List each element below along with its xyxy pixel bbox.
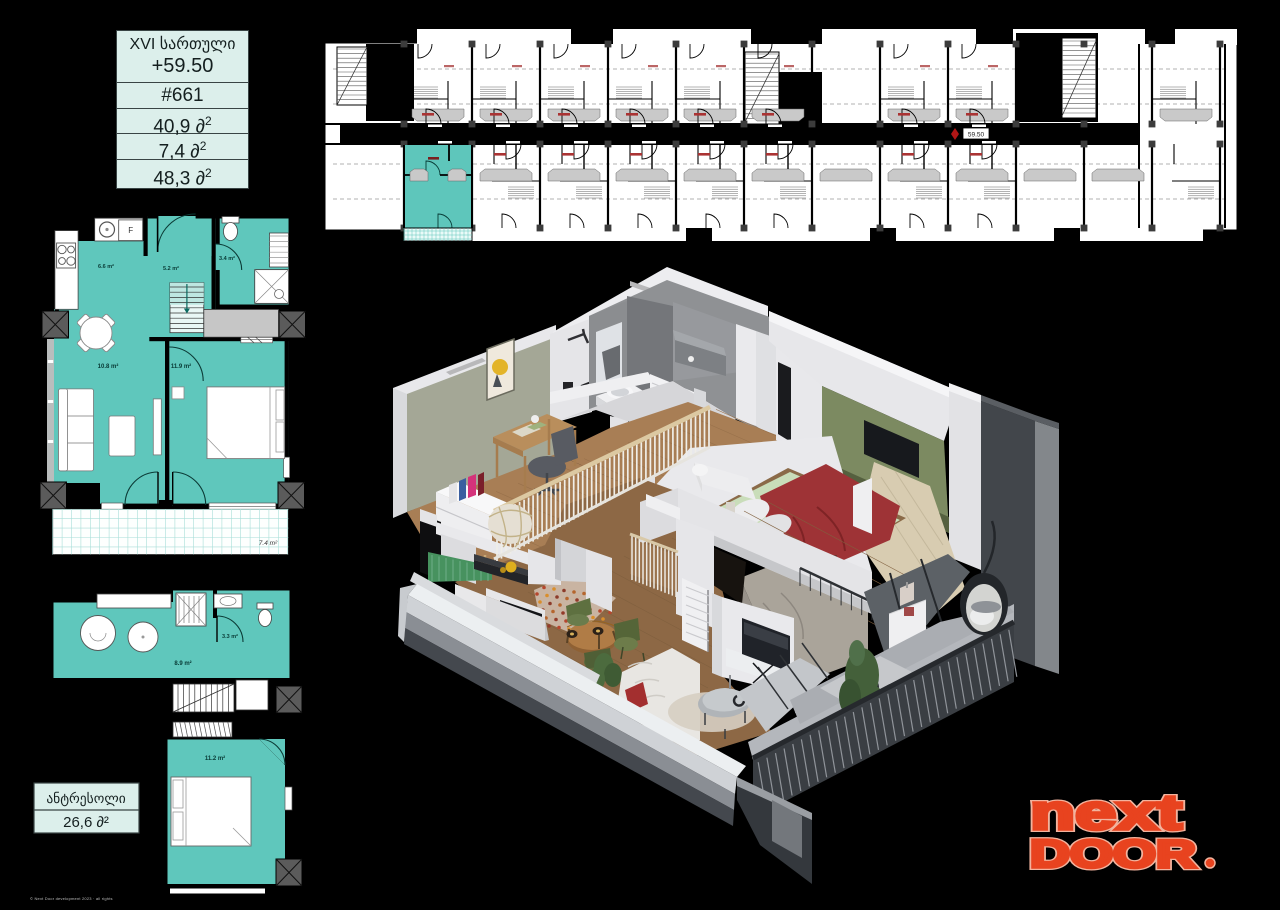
svg-text:59.50: 59.50 [968, 132, 985, 139]
svg-text:26,6 ∂²: 26,6 ∂² [63, 814, 109, 831]
svg-text:F: F [128, 226, 133, 235]
svg-text:5.2 m²: 5.2 m² [163, 265, 179, 272]
svg-text:ანტრესოლი: ანტრესოლი [46, 791, 125, 807]
svg-text:11.9 m²: 11.9 m² [171, 363, 191, 370]
svg-text:8.9 m²: 8.9 m² [174, 660, 191, 667]
svg-text:6.6 m²: 6.6 m² [98, 263, 114, 270]
svg-text:10.8 m²: 10.8 m² [98, 363, 119, 370]
svg-text:7.4 m²: 7.4 m² [259, 540, 278, 547]
svg-text:next: next [1030, 786, 1182, 840]
svg-text:3.4 m²: 3.4 m² [219, 255, 235, 262]
svg-text:DOOR: DOOR [1030, 833, 1196, 876]
svg-text:11.2 m²: 11.2 m² [205, 755, 225, 762]
svg-text:3.3 m²: 3.3 m² [222, 633, 238, 640]
